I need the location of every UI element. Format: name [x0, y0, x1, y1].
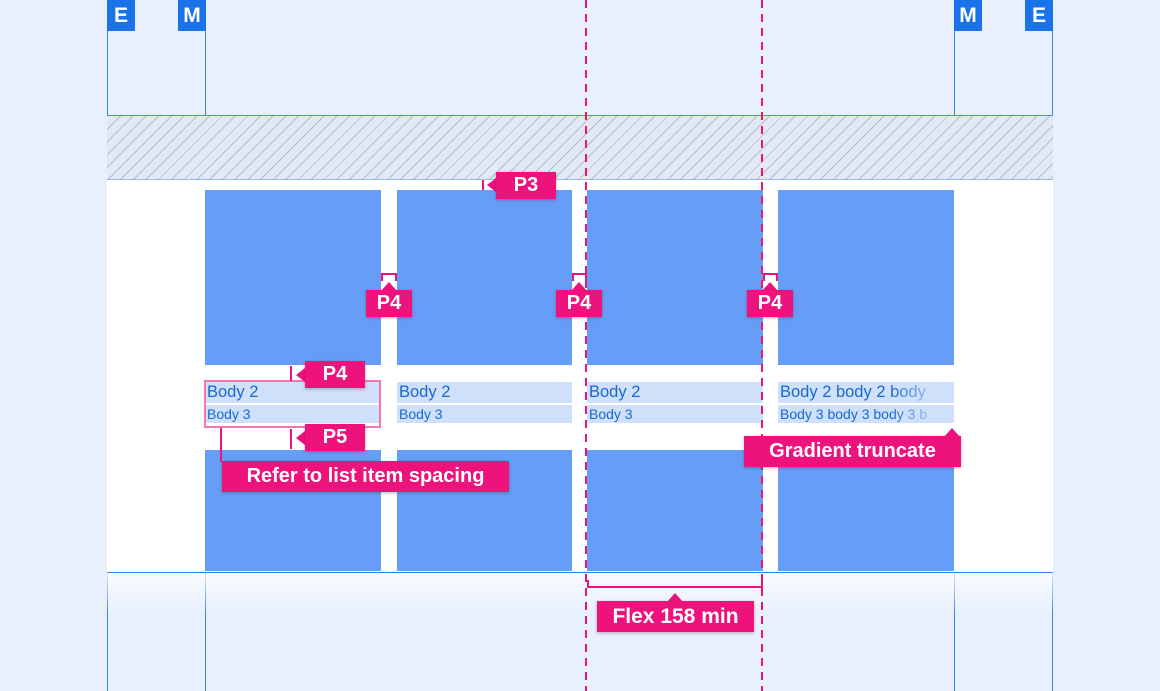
caret-left-icon [296, 368, 305, 382]
margin-marker-m-left: M [178, 0, 206, 31]
tag-text: P4 [567, 292, 591, 315]
card-body2-row: Body 2 [397, 382, 572, 403]
card-image [397, 190, 572, 365]
card-body3-row: Body 3 [397, 405, 572, 423]
caret-left-icon [296, 431, 305, 445]
p4-gutter-tag: P4 [366, 290, 412, 317]
card-body3-row: Body 3 [587, 405, 763, 423]
gutter-measure [381, 273, 397, 281]
card-body3-text: Body 3 [399, 406, 443, 422]
gradient-truncate-fade [890, 382, 954, 403]
gutter-measure [572, 273, 587, 281]
card-body2-text: Body 2 [399, 383, 450, 401]
card-image [778, 450, 954, 571]
marker-letter: E [114, 4, 128, 28]
flex-min-width-tag: Flex 158 min [597, 601, 754, 632]
card-image [778, 190, 954, 365]
p5-spacing-tag: P5 [305, 424, 365, 451]
p4-gutter-tag: P4 [747, 290, 793, 317]
tag-text: P4 [377, 292, 401, 315]
tag-text: Gradient truncate [769, 440, 936, 463]
gradient-truncate-tag: Gradient truncate [744, 436, 961, 467]
refer-connector-line [220, 428, 222, 462]
margin-marker-e-left: E [107, 0, 135, 31]
layout-spec-canvas: Body 2 Body 3 Body 2 Body 3 Body 2 Body … [0, 0, 1160, 691]
card-body3-text: Body 3 [589, 406, 633, 422]
tag-text: Refer to list item spacing [247, 465, 485, 488]
tag-text: P4 [323, 363, 347, 386]
card-image [205, 190, 381, 365]
marker-letter: M [183, 4, 201, 28]
p4-text-spacing-tag: P4 [305, 361, 365, 388]
p3-tick [482, 180, 484, 190]
tag-text: Flex 158 min [612, 605, 738, 629]
margin-marker-m-right: M [954, 0, 982, 31]
card-body2-text: Body 2 [589, 383, 640, 401]
caret-left-icon [487, 178, 496, 192]
marker-letter: M [959, 4, 977, 28]
p4-gutter-tag: P4 [556, 290, 602, 317]
p4-tick [290, 366, 292, 381]
card-body2-row: Body 2 [587, 382, 763, 403]
flex-width-bracket [587, 580, 763, 588]
gutter-measure [763, 273, 778, 281]
card-body3-row: Body 3 body 3 body 3 b [778, 405, 954, 423]
p3-spacing-tag: P3 [496, 172, 556, 199]
card-body2-row: Body 2 body 2 body [778, 382, 954, 403]
tag-text: P4 [758, 292, 782, 315]
gradient-truncate-fade [890, 405, 954, 423]
margin-marker-e-right: E [1025, 0, 1053, 31]
tag-text: P3 [514, 174, 538, 197]
card-image [587, 190, 763, 365]
card-image [587, 450, 763, 571]
hatched-band [107, 115, 1053, 180]
tag-text: P5 [323, 426, 347, 449]
refer-list-item-spacing-tag: Refer to list item spacing [222, 461, 509, 492]
marker-letter: E [1032, 4, 1046, 28]
surface-bottom-shade [107, 573, 1053, 615]
p5-tick [290, 429, 292, 449]
